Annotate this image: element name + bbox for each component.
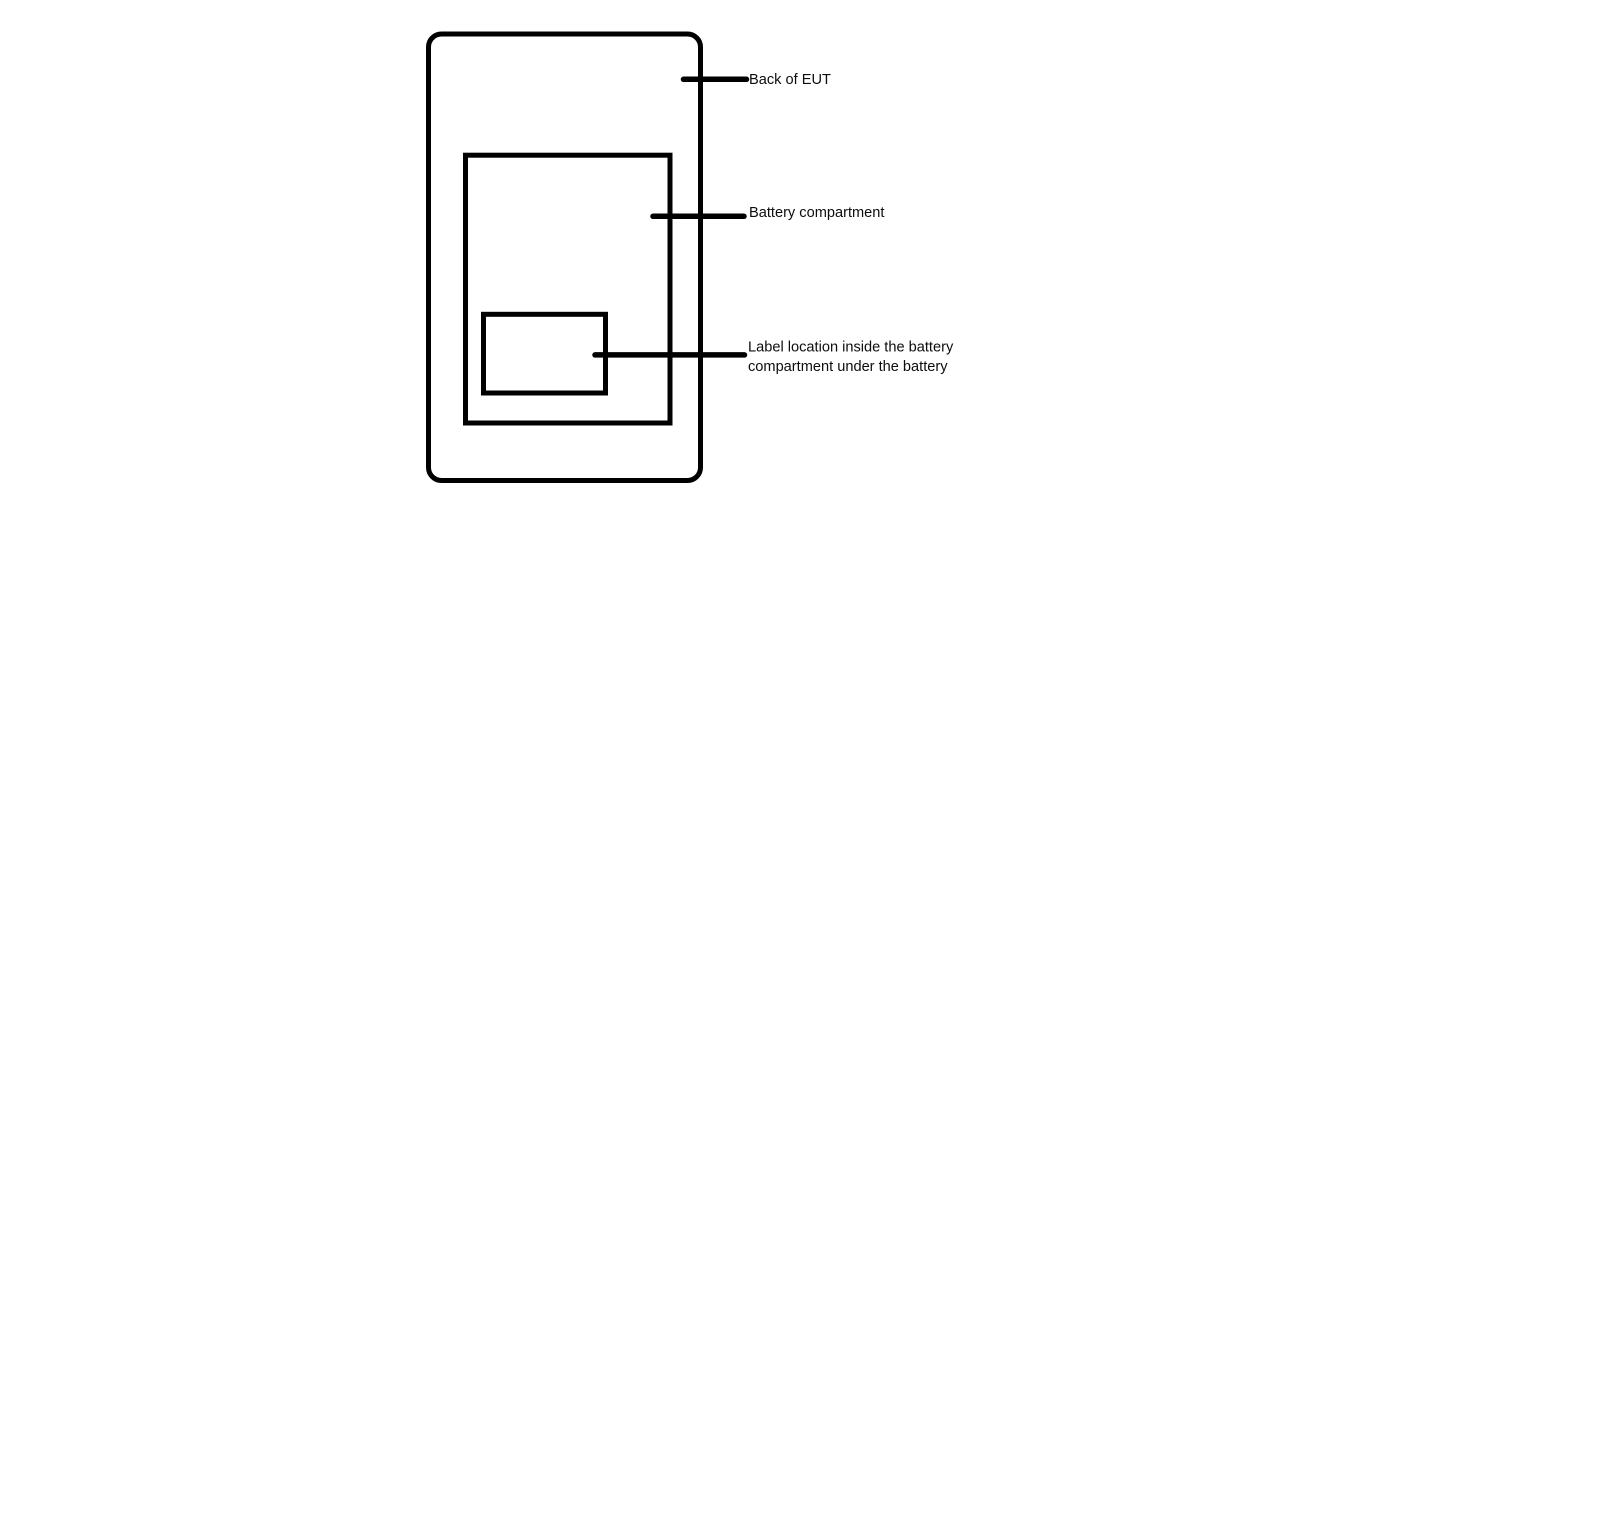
svg-text:Battery compartment: Battery compartment (749, 205, 884, 221)
svg-text:compartment under the battery: compartment under the battery (748, 359, 948, 375)
svg-text:Back of EUT: Back of EUT (749, 72, 831, 88)
svg-text:Label location inside the batt: Label location inside the battery (748, 340, 954, 356)
